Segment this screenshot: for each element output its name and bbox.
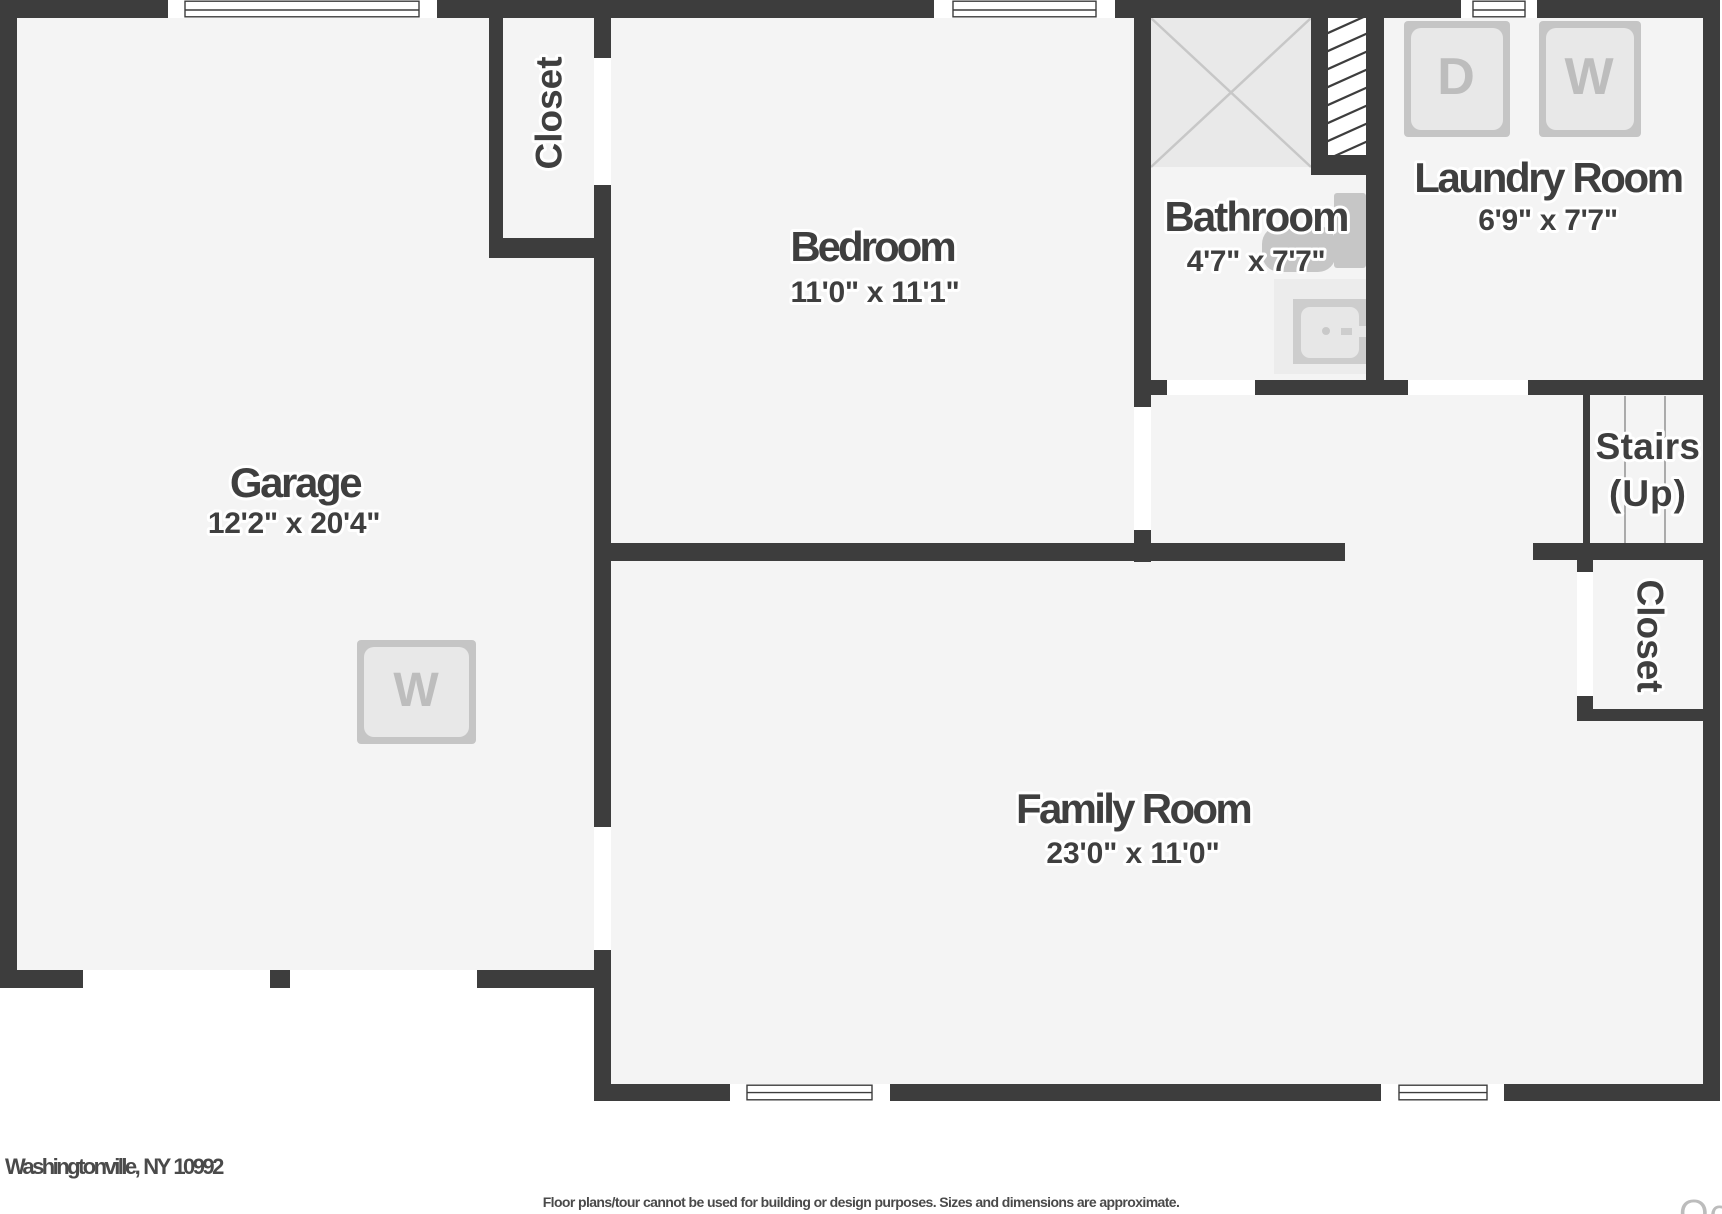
svg-text:Family Room: Family Room <box>1016 785 1250 832</box>
svg-text:Closet: Closet <box>529 56 570 169</box>
svg-text:Bathroom: Bathroom <box>1164 193 1347 240</box>
svg-text:Bedroom: Bedroom <box>790 223 954 270</box>
svg-text:Stairs: Stairs <box>1596 426 1701 467</box>
svg-text:12'2" x 20'4": 12'2" x 20'4" <box>208 507 380 540</box>
svg-text:W: W <box>1564 48 1614 106</box>
svg-text:Garage: Garage <box>230 459 361 506</box>
svg-text:Washingtonville, NY 10992: Washingtonville, NY 10992 <box>5 1154 224 1179</box>
svg-text:23'0" x 11'0": 23'0" x 11'0" <box>1046 837 1219 870</box>
svg-text:Floor plans/tour cannot be use: Floor plans/tour cannot be used for buil… <box>543 1194 1180 1210</box>
svg-text:(Up): (Up) <box>1609 473 1687 514</box>
svg-text:Oc: Oc <box>1679 1193 1722 1214</box>
svg-text:11'0" x 11'1": 11'0" x 11'1" <box>791 276 960 309</box>
svg-text:Closet: Closet <box>1630 579 1671 692</box>
svg-text:D: D <box>1437 48 1475 106</box>
svg-text:4'7" x 7'7": 4'7" x 7'7" <box>1187 245 1325 278</box>
svg-text:W: W <box>393 664 439 717</box>
svg-text:6'9" x 7'7": 6'9" x 7'7" <box>1478 204 1618 237</box>
svg-text:Laundry Room: Laundry Room <box>1414 154 1682 201</box>
